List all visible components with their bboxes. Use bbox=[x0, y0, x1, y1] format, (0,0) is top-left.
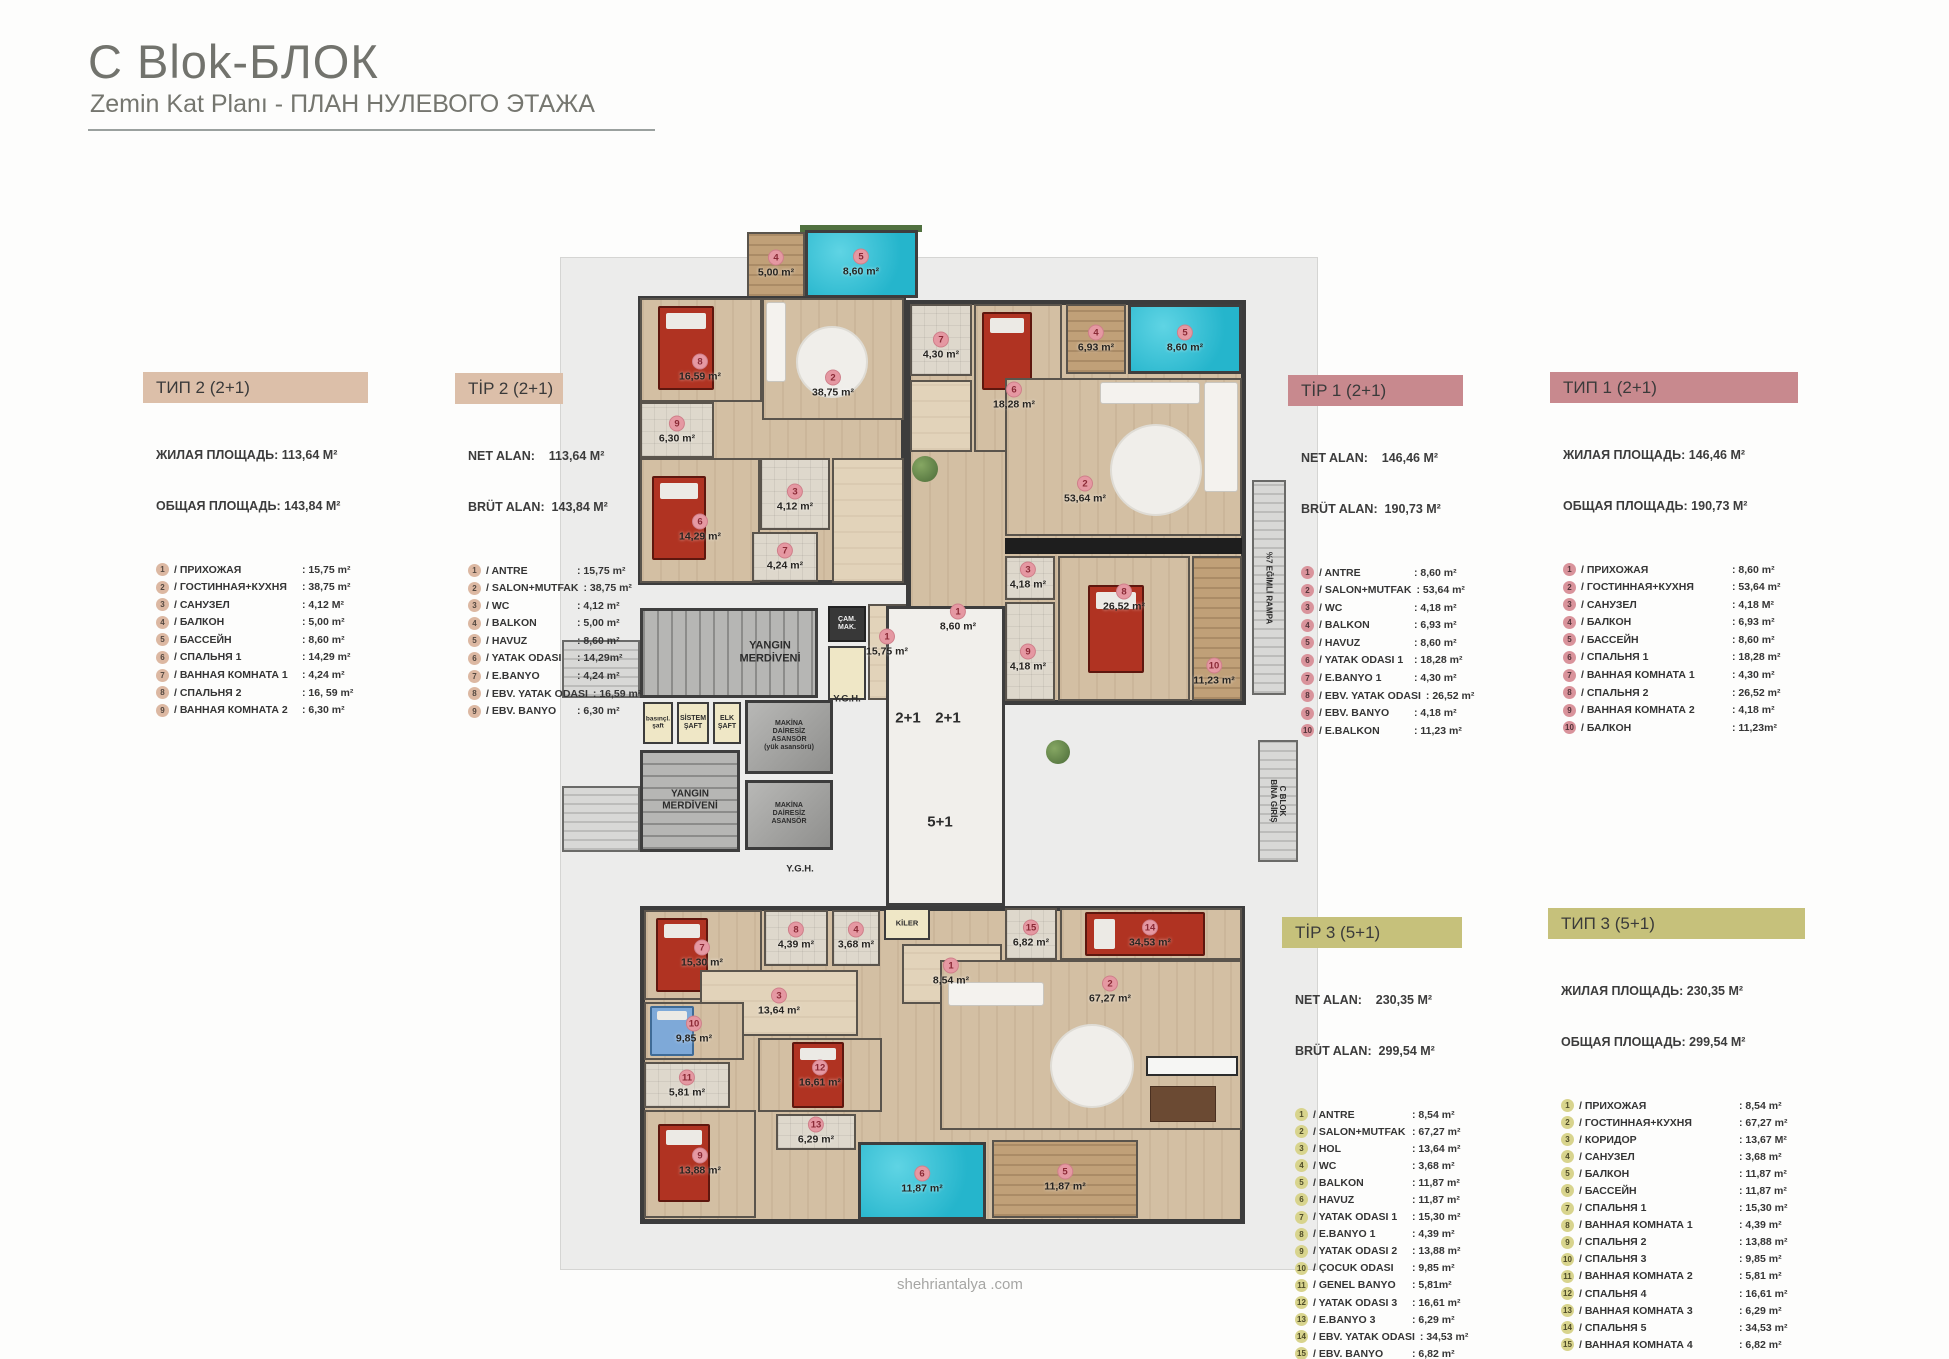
room-number-badge: 2 bbox=[1561, 1116, 1574, 1129]
legend-tr-tip1: TİP 1 (2+1) NET ALAN: 146,46 M² BRÜT ALA… bbox=[1288, 375, 1480, 742]
legend-row: 2/ SALON+MUTFAK: 38,75 m² bbox=[468, 582, 643, 595]
room-name: / ВАННАЯ КОМНАТА 1 bbox=[1579, 1219, 1734, 1231]
legend-row: 6/ HAVUZ: 11,87 m² bbox=[1295, 1193, 1478, 1206]
room-name: / ВАННАЯ КОМНАТА 4 bbox=[1579, 1339, 1734, 1351]
plan-room-label: 1011,23 m² bbox=[1193, 658, 1234, 687]
room-name: / EBV. YATAK ODASI bbox=[1319, 690, 1421, 702]
room-name: / СПАЛЬНЯ 2 bbox=[174, 687, 297, 699]
room-name: / ВАННАЯ КОМНАТА 1 bbox=[1581, 669, 1727, 681]
room-number-badge: 2 bbox=[1102, 976, 1118, 992]
kitchen-counter bbox=[1005, 538, 1242, 554]
room-name: / HOL bbox=[1313, 1143, 1407, 1155]
room-name: / СПАЛЬНЯ 2 bbox=[1579, 1236, 1734, 1248]
plan-room-label: 313,64 m² bbox=[758, 988, 800, 1017]
room-area-value: : 5,81m² bbox=[1412, 1279, 1478, 1291]
room-number-badge: 14 bbox=[1142, 920, 1158, 936]
room-number-badge: 3 bbox=[1020, 562, 1036, 578]
room-number-badge: 11 bbox=[1561, 1270, 1574, 1283]
legend-row: 2/ SALON+MUTFAK: 67,27 m² bbox=[1295, 1125, 1478, 1138]
room-name: / ПРИХОЖАЯ bbox=[174, 564, 297, 576]
room-name: / WC bbox=[1313, 1160, 1407, 1172]
room-area-value: : 4,30 m² bbox=[1414, 672, 1480, 684]
legend-title: ТИП 1 (2+1) bbox=[1550, 372, 1798, 403]
room-area-value: : 11,87 m² bbox=[1412, 1177, 1478, 1189]
room-number-badge: 12 bbox=[812, 1060, 828, 1076]
legend-row: 7/ ВАННАЯ КОМНАТА 1: 4,30 m² bbox=[1563, 669, 1798, 682]
room-number-badge: 8 bbox=[1561, 1219, 1574, 1232]
room-area-value: : 6,93 m² bbox=[1732, 616, 1798, 628]
room-name: / СПАЛЬНЯ 5 bbox=[1579, 1322, 1734, 1334]
brochure-page: C Blok-БЛОК Zemin Kat Planı - ПЛАН НУЛЕВ… bbox=[0, 0, 1949, 1359]
legend-row: 9/ ВАННАЯ КОМНАТА 2: 6,30 m² bbox=[156, 704, 368, 717]
legend-row: 1/ ПРИХОЖАЯ: 8,60 m² bbox=[1563, 563, 1798, 576]
plan-annotation: %7 EĞİMLİ RAMPA bbox=[1264, 552, 1273, 624]
legend-row: 1/ ANTRE: 8,54 m² bbox=[1295, 1108, 1478, 1121]
room-area-value: 3,68 m² bbox=[838, 939, 874, 951]
room-area-value: : 6,29 m² bbox=[1412, 1314, 1478, 1326]
plan-room-label: 913,88 m² bbox=[679, 1148, 721, 1177]
plan-room-label: 58,60 m² bbox=[843, 249, 879, 278]
room-number-badge: 1 bbox=[156, 563, 169, 576]
legend-row: 1/ ПРИХОЖАЯ: 15,75 m² bbox=[156, 563, 368, 576]
room-number-badge: 9 bbox=[1295, 1245, 1308, 1258]
room-number-badge: 10 bbox=[1206, 658, 1222, 674]
room-name: / YATAK ODASI 1 bbox=[1319, 654, 1409, 666]
room-area-value: 8,60 m² bbox=[1167, 342, 1203, 354]
room-number-badge: 10 bbox=[686, 1016, 702, 1032]
legend-area-line: ОБЩАЯ ПЛОЩАДЬ: 190,73 М² bbox=[1563, 498, 1798, 515]
room-number-badge: 6 bbox=[692, 514, 708, 530]
room-number-badge: 2 bbox=[1295, 1125, 1308, 1138]
exterior-stairs-2 bbox=[562, 786, 640, 852]
legend-row: 1/ ANTRE: 8,60 m² bbox=[1301, 566, 1480, 579]
legend-tr-tip3: TİP 3 (5+1) NET ALAN: 230,35 M² BRÜT ALA… bbox=[1282, 917, 1478, 1359]
legend-row: 8/ EBV. YATAK ODASI: 16,59 m² bbox=[468, 687, 643, 700]
room-area-value: 13,64 m² bbox=[758, 1005, 800, 1017]
room-number-badge: 4 bbox=[768, 250, 784, 266]
room-number-badge: 8 bbox=[692, 354, 708, 370]
room-area-value: : 16,61 m² bbox=[1739, 1288, 1805, 1300]
plan-room-label: 18,54 m² bbox=[933, 958, 969, 987]
legend-row: 5/ HAVUZ: 8,60 m² bbox=[468, 634, 643, 647]
legend-row: 4/ САНУЗЕЛ: 3,68 m² bbox=[1561, 1150, 1805, 1163]
room-name: / БАЛКОН bbox=[1581, 616, 1727, 628]
legend-row: 5/ БАССЕЙН: 8,60 m² bbox=[1563, 633, 1798, 646]
room-area-value: : 15,30 m² bbox=[1739, 1202, 1805, 1214]
plan-room-label: 156,82 m² bbox=[1013, 920, 1049, 949]
hall-tip1 bbox=[910, 380, 972, 452]
plan-annotation: ELK ŞAFT bbox=[718, 715, 736, 731]
room-area-value: : 13,64 m² bbox=[1412, 1143, 1478, 1155]
room-number-badge: 3 bbox=[787, 484, 803, 500]
room-area-value: 13,88 m² bbox=[679, 1165, 721, 1177]
legend-row: 5/ БАЛКОН: 11,87 m² bbox=[1561, 1167, 1805, 1180]
legend-rows: 1/ ANTRE: 8,60 m²2/ SALON+MUTFAK: 53,64 … bbox=[1288, 566, 1480, 742]
plan-room-label: 34,18 m² bbox=[1010, 562, 1046, 591]
legend-row: 5/ HAVUZ: 8,60 m² bbox=[1301, 636, 1480, 649]
room-number-badge: 7 bbox=[1295, 1211, 1308, 1224]
room-area-value: : 9,85 m² bbox=[1412, 1262, 1478, 1274]
room-area-value: : 8,54 m² bbox=[1739, 1100, 1805, 1112]
room-number-badge: 15 bbox=[1561, 1338, 1574, 1351]
page-subtitle: Zemin Kat Planı - ПЛАН НУЛЕВОГО ЭТАЖА bbox=[90, 90, 595, 119]
room-name: / SALON+MUTFAK bbox=[486, 582, 578, 594]
room-number-badge: 14 bbox=[1561, 1321, 1574, 1334]
room-name: / САНУЗЕЛ bbox=[1581, 599, 1727, 611]
legend-row: 10/ СПАЛЬНЯ 3: 9,85 m² bbox=[1561, 1253, 1805, 1266]
room-number-badge: 8 bbox=[468, 687, 481, 700]
room-area-value: 34,53 m² bbox=[1129, 937, 1171, 949]
room-number-badge: 3 bbox=[771, 988, 787, 1004]
plan-room-label: 115,81 m² bbox=[669, 1070, 705, 1099]
room-number-badge: 8 bbox=[1295, 1228, 1308, 1241]
rug bbox=[1050, 1024, 1134, 1108]
room-number-badge: 3 bbox=[1301, 601, 1314, 614]
plan-room-label: 94,18 m² bbox=[1010, 644, 1046, 673]
room-name: / WC bbox=[486, 600, 572, 612]
room-number-badge: 5 bbox=[1295, 1176, 1308, 1189]
room-number-badge: 13 bbox=[808, 1117, 824, 1133]
room-name: / BALKON bbox=[1313, 1177, 1407, 1189]
dining-table bbox=[1150, 1086, 1216, 1122]
legend-row: 2/ ГОСТИННАЯ+КУХНЯ: 53,64 m² bbox=[1563, 581, 1798, 594]
room-name: / HAVUZ bbox=[1313, 1194, 1407, 1206]
plan-room-label: 1434,53 m² bbox=[1129, 920, 1171, 949]
room-name: / ВАННАЯ КОМНАТА 1 bbox=[174, 669, 297, 681]
room-area-value: : 15,30 m² bbox=[1412, 1211, 1478, 1223]
legend-title: ТИП 2 (2+1) bbox=[143, 372, 368, 403]
room-name: / YATAK ODASI 1 bbox=[1313, 1211, 1407, 1223]
room-area-value: 16,61 m² bbox=[799, 1077, 841, 1089]
legend-area-line: NET ALAN: 230,35 M² bbox=[1295, 992, 1478, 1009]
room-number-badge: 15 bbox=[1295, 1347, 1308, 1359]
room-name: / YATAK ODASI bbox=[486, 652, 572, 664]
room-number-badge: 7 bbox=[1563, 669, 1576, 682]
room-area-value: 8,54 m² bbox=[933, 975, 969, 987]
sofa bbox=[766, 302, 786, 382]
legend-ru-tip1: ТИП 1 (2+1) ЖИЛАЯ ПЛОЩАДЬ: 146,46 М² ОБЩ… bbox=[1550, 372, 1798, 739]
room-number-badge: 7 bbox=[1301, 672, 1314, 685]
room-area-value: 18,28 m² bbox=[993, 399, 1035, 411]
room-number-badge: 5 bbox=[1563, 633, 1576, 646]
room-number-badge: 3 bbox=[1561, 1133, 1574, 1146]
legend-row: 1/ ANTRE: 15,75 m² bbox=[468, 564, 643, 577]
room-number-badge: 11 bbox=[1295, 1279, 1308, 1292]
legend-row: 5/ BALKON: 11,87 m² bbox=[1295, 1176, 1478, 1189]
room-area-value: 67,27 m² bbox=[1089, 993, 1131, 1005]
plan-annotation: ÇAM. MAK. bbox=[838, 616, 856, 632]
room-name: / ANTRE bbox=[1313, 1109, 1407, 1121]
legend-row: 9/ YATAK ODASI 2: 13,88 m² bbox=[1295, 1245, 1478, 1258]
room-number-badge: 3 bbox=[1563, 598, 1576, 611]
plan-room-label: 618,28 m² bbox=[993, 382, 1035, 411]
room-number-badge: 3 bbox=[468, 599, 481, 612]
room-area-value: 4,18 m² bbox=[1010, 661, 1046, 673]
legend-row: 6/ СПАЛЬНЯ 1: 14,29 m² bbox=[156, 651, 368, 664]
plan-room-label: 18,60 m² bbox=[940, 604, 976, 633]
legend-row: 3/ WC: 4,12 m² bbox=[468, 599, 643, 612]
room-area-value: : 11,87 m² bbox=[1739, 1168, 1805, 1180]
room-number-badge: 5 bbox=[156, 633, 169, 646]
room-area-value: 11,87 m² bbox=[901, 1183, 942, 1195]
plan-room-label: 96,30 m² bbox=[659, 416, 695, 445]
legend-row: 5/ БАССЕЙН: 8,60 m² bbox=[156, 633, 368, 646]
room-number-badge: 6 bbox=[1006, 382, 1022, 398]
room-name: / СПАЛЬНЯ 4 bbox=[1579, 1288, 1734, 1300]
plan-annotation: SİSTEM ŞAFT bbox=[680, 715, 706, 731]
rug bbox=[1110, 424, 1202, 516]
legend-row: 3/ КОРИДОР: 13,67 М² bbox=[1561, 1133, 1805, 1146]
room-name: / КОРИДОР bbox=[1579, 1134, 1734, 1146]
sofa bbox=[1204, 382, 1238, 492]
room-area-value: : 11,23 m² bbox=[1414, 725, 1480, 737]
legend-row: 3/ WC: 4,18 m² bbox=[1301, 601, 1480, 614]
room-area-value: : 4,18 m² bbox=[1732, 704, 1798, 716]
room-name: / SALON+MUTFAK bbox=[1313, 1126, 1407, 1138]
room-area-value: 26,52 m² bbox=[1103, 601, 1145, 613]
legend-row: 8/ СПАЛЬНЯ 2: 16, 59 m² bbox=[156, 686, 368, 699]
plan-annotation: Y.G.H. bbox=[786, 865, 813, 876]
legend-row: 10/ ÇOCUK ODASI: 9,85 m² bbox=[1295, 1262, 1478, 1275]
room-area-value: : 8,54 m² bbox=[1412, 1109, 1478, 1121]
room-area-value: : 67,27 m² bbox=[1739, 1117, 1805, 1129]
legend-row: 6/ YATAK ODASI 1: 18,28 m² bbox=[1301, 654, 1480, 667]
hall-tip2 bbox=[832, 458, 904, 583]
room-name: / ГОСТИННАЯ+КУХНЯ bbox=[174, 581, 297, 593]
room-area-value: 9,85 m² bbox=[676, 1033, 712, 1045]
legend-rows: 1/ ПРИХОЖАЯ: 8,60 m²2/ ГОСТИННАЯ+КУХНЯ: … bbox=[1550, 563, 1798, 739]
room-area-value: : 11,87 m² bbox=[1412, 1194, 1478, 1206]
room-name: / БАССЕЙН bbox=[174, 634, 297, 646]
room-area-value: : 14,29m² bbox=[577, 652, 643, 664]
room-area-value: : 5,81 m² bbox=[1739, 1270, 1805, 1282]
legend-ru-tip2: ТИП 2 (2+1) ЖИЛАЯ ПЛОЩАДЬ: 113,64 М² ОБЩ… bbox=[143, 372, 368, 721]
legend-row: 13/ E.BANYO 3: 6,29 m² bbox=[1295, 1313, 1478, 1326]
room-name: / E.BANYO 1 bbox=[1319, 672, 1409, 684]
room-name: / EBV. BANYO bbox=[1319, 707, 1409, 719]
plan-annotation: MAKİNA DAİRESİZ ASANSÖR bbox=[771, 802, 806, 826]
room-area-value: : 14,29 m² bbox=[302, 651, 368, 663]
room-name: / E.BALKON bbox=[1319, 725, 1409, 737]
plan-room-label: 45,00 m² bbox=[758, 250, 794, 279]
room-number-badge: 3 bbox=[156, 598, 169, 611]
plan-room-label: 1216,61 m² bbox=[799, 1060, 841, 1089]
plan-room-label: 115,75 m² bbox=[866, 629, 908, 658]
legend-row: 6/ БАССЕЙН: 11,87 m² bbox=[1561, 1184, 1805, 1197]
room-number-badge: 5 bbox=[1301, 636, 1314, 649]
room-number-badge: 12 bbox=[1561, 1287, 1574, 1300]
legend-area-line: ЖИЛАЯ ПЛОЩАДЬ: 113,64 М² bbox=[156, 447, 368, 464]
legend-row: 10/ E.BALKON: 11,23 m² bbox=[1301, 724, 1480, 737]
room-area-value: : 11,23m² bbox=[1732, 722, 1798, 734]
room-area-value: : 13,88 m² bbox=[1412, 1245, 1478, 1257]
plan-annotation: Y.G.H. bbox=[833, 695, 860, 706]
room-number-badge: 13 bbox=[1295, 1313, 1308, 1326]
plan-room-label: 136,29 m² bbox=[798, 1117, 834, 1146]
room-name: / ГОСТИННАЯ+КУХНЯ bbox=[1579, 1117, 1734, 1129]
room-number-badge: 2 bbox=[1077, 476, 1093, 492]
legend-row: 6/ СПАЛЬНЯ 1: 18,28 m² bbox=[1563, 651, 1798, 664]
legend-row: 2/ SALON+MUTFAK: 53,64 m² bbox=[1301, 584, 1480, 597]
plan-room-label: 816,59 m² bbox=[679, 354, 721, 383]
legend-row: 6/ YATAK ODASI: 14,29m² bbox=[468, 652, 643, 665]
room-area-value: : 8,60 m² bbox=[1732, 634, 1798, 646]
room-name: / БАЛКОН bbox=[1581, 722, 1727, 734]
room-number-badge: 7 bbox=[468, 670, 481, 683]
room-name: / БАЛКОН bbox=[174, 616, 297, 628]
room-area-value: 6,30 m² bbox=[659, 433, 695, 445]
room-number-badge: 6 bbox=[468, 652, 481, 665]
legend-row: 11/ GENEL BANYO: 5,81m² bbox=[1295, 1279, 1478, 1292]
room-area-value: : 6,30 m² bbox=[577, 705, 643, 717]
legend-area-line: NET ALAN: 113,64 M² bbox=[468, 448, 643, 465]
room-area-value: : 18,28 m² bbox=[1414, 654, 1480, 666]
room-name: / E.BANYO 1 bbox=[1313, 1228, 1407, 1240]
plan-annotation: YANGIN MERDİVENİ bbox=[739, 639, 800, 664]
room-number-badge: 1 bbox=[1295, 1108, 1308, 1121]
plan-room-label: 715,30 m² bbox=[681, 940, 723, 969]
plant bbox=[912, 456, 938, 482]
room-number-badge: 4 bbox=[848, 922, 864, 938]
legend-row: 8/ ВАННАЯ КОМНАТА 1: 4,39 m² bbox=[1561, 1219, 1805, 1232]
plan-room-label: 46,93 m² bbox=[1078, 325, 1114, 354]
legend-area-line: NET ALAN: 146,46 M² bbox=[1301, 450, 1480, 467]
room-name: / EBV. YATAK ODASI bbox=[1313, 1331, 1415, 1343]
plan-annotation: 2+1 bbox=[935, 709, 960, 726]
room-area-value: 4,30 m² bbox=[923, 349, 959, 361]
legend-row: 13/ ВАННАЯ КОМНАТА 3: 6,29 m² bbox=[1561, 1304, 1805, 1317]
room-name: / ANTRE bbox=[486, 565, 572, 577]
room-number-badge: 7 bbox=[777, 543, 793, 559]
room-number-badge: 7 bbox=[933, 332, 949, 348]
room-name: / БАССЕЙН bbox=[1581, 634, 1727, 646]
room-name: / EBV. YATAK ODASI bbox=[486, 688, 588, 700]
legend-title: ТИП 3 (5+1) bbox=[1548, 908, 1805, 939]
plan-room-label: 614,29 m² bbox=[679, 514, 721, 543]
room-number-badge: 7 bbox=[1561, 1202, 1574, 1215]
room-area-value: : 53,64 m² bbox=[1416, 584, 1482, 596]
room-name: / ПРИХОЖАЯ bbox=[1579, 1100, 1734, 1112]
room-number-badge: 7 bbox=[694, 940, 710, 956]
legend-area-line: ЖИЛАЯ ПЛОЩАДЬ: 230,35 М² bbox=[1561, 983, 1805, 1000]
room-name: / БАЛКОН bbox=[1579, 1168, 1734, 1180]
room-name: / EBV. BANYO bbox=[1313, 1348, 1407, 1359]
legend-row: 4/ БАЛКОН: 5,00 m² bbox=[156, 616, 368, 629]
room-name: / САНУЗЕЛ bbox=[174, 599, 297, 611]
room-number-badge: 4 bbox=[1301, 619, 1314, 632]
room-number-badge: 6 bbox=[914, 1166, 930, 1182]
legend-row: 8/ СПАЛЬНЯ 2: 26,52 m² bbox=[1563, 686, 1798, 699]
plan-room-label: 611,87 m² bbox=[901, 1166, 942, 1195]
plan-room-label: 511,87 m² bbox=[1044, 1164, 1085, 1193]
room-area-value: : 8,60 m² bbox=[1414, 637, 1480, 649]
room-name: / ВАННАЯ КОМНАТА 3 bbox=[1579, 1305, 1734, 1317]
room-number-badge: 1 bbox=[1563, 563, 1576, 576]
plan-annotation: C BLOK BİNA GİRİŞ bbox=[1269, 779, 1287, 822]
sofa bbox=[1100, 382, 1200, 404]
room-name: / EBV. BANYO bbox=[486, 705, 572, 717]
room-area-value: 16,59 m² bbox=[679, 371, 721, 383]
room-number-badge: 4 bbox=[1563, 616, 1576, 629]
legend-row: 8/ E.BANYO 1: 4,39 m² bbox=[1295, 1228, 1478, 1241]
room-area-value: : 8,60 m² bbox=[302, 634, 368, 646]
room-number-badge: 9 bbox=[468, 705, 481, 718]
room-number-badge: 9 bbox=[1561, 1236, 1574, 1249]
room-area-value: 4,24 m² bbox=[767, 560, 803, 572]
room-name: / E.BANYO bbox=[486, 670, 572, 682]
legend-row: 14/ EBV. YATAK ODASI: 34,53 m² bbox=[1295, 1330, 1478, 1343]
room-area-value: : 9,85 m² bbox=[1739, 1253, 1805, 1265]
room-area-value: 4,18 m² bbox=[1010, 579, 1046, 591]
plan-room-label: 253,64 m² bbox=[1064, 476, 1106, 505]
legend-row: 7/ YATAK ODASI 1: 15,30 m² bbox=[1295, 1211, 1478, 1224]
room-number-badge: 10 bbox=[1563, 721, 1576, 734]
room-number-badge: 1 bbox=[950, 604, 966, 620]
room-number-badge: 1 bbox=[1561, 1099, 1574, 1112]
room-area-value: 11,23 m² bbox=[1193, 675, 1234, 687]
room-number-badge: 2 bbox=[825, 370, 841, 386]
room-number-badge: 4 bbox=[1295, 1159, 1308, 1172]
legend-row: 10/ БАЛКОН: 11,23m² bbox=[1563, 721, 1798, 734]
legend-row: 9/ EBV. BANYO: 6,30 m² bbox=[468, 705, 643, 718]
legend-row: 7/ E.BANYO: 4,24 m² bbox=[468, 670, 643, 683]
room-number-badge: 9 bbox=[692, 1148, 708, 1164]
room-number-badge: 6 bbox=[1563, 651, 1576, 664]
legend-row: 4/ БАЛКОН: 6,93 m² bbox=[1563, 616, 1798, 629]
room-number-badge: 10 bbox=[1561, 1253, 1574, 1266]
plan-room-label: 267,27 m² bbox=[1089, 976, 1131, 1005]
room-area-value: : 67,27 m² bbox=[1412, 1126, 1478, 1138]
room-area-value: : 6,93 m² bbox=[1414, 619, 1480, 631]
room-area-value: : 16, 59 m² bbox=[302, 687, 368, 699]
legend-row: 9/ EBV. BANYO: 4,18 m² bbox=[1301, 707, 1480, 720]
room-number-badge: 11 bbox=[679, 1070, 695, 1086]
legend-area-line: BRÜT ALAN: 143,84 M² bbox=[468, 499, 643, 516]
room-area-value: 15,30 m² bbox=[681, 957, 723, 969]
legend-row: 7/ СПАЛЬНЯ 1: 15,30 m² bbox=[1561, 1202, 1805, 1215]
room-area-value: : 4,39 m² bbox=[1739, 1219, 1805, 1231]
room-area-value: : 4,24 m² bbox=[577, 670, 643, 682]
room-area-value: : 6,82 m² bbox=[1739, 1339, 1805, 1351]
room-name: / HAVUZ bbox=[486, 635, 572, 647]
room-number-badge: 12 bbox=[1295, 1296, 1308, 1309]
room-number-badge: 8 bbox=[1563, 686, 1576, 699]
room-name: / BALKON bbox=[486, 617, 572, 629]
room-area-value: : 5,00 m² bbox=[302, 616, 368, 628]
legend-title: TİP 2 (2+1) bbox=[455, 373, 563, 404]
room-number-badge: 6 bbox=[1295, 1193, 1308, 1206]
room-area-value: : 4,12 m² bbox=[577, 600, 643, 612]
plan-room-label: 43,68 m² bbox=[838, 922, 874, 951]
room-area-value: : 18,28 m² bbox=[1732, 651, 1798, 663]
room-name: / БАССЕЙН bbox=[1579, 1185, 1734, 1197]
website-footer: shehriantalya .com bbox=[897, 1276, 1023, 1293]
legend-row: 9/ ВАННАЯ КОМНАТА 2: 4,18 m² bbox=[1563, 704, 1798, 717]
plan-room-label: 238,75 m² bbox=[812, 370, 854, 399]
legend-rows: 1/ ПРИХОЖАЯ: 15,75 m²2/ ГОСТИННАЯ+КУХНЯ:… bbox=[143, 563, 368, 721]
room-name: / ВАННАЯ КОМНАТА 2 bbox=[174, 704, 297, 716]
room-name: / ПРИХОЖАЯ bbox=[1581, 564, 1727, 576]
room-name: / SALON+MUTFAK bbox=[1319, 584, 1411, 596]
plan-room-label: 109,85 m² bbox=[676, 1016, 712, 1045]
legend-row: 4/ WC: 3,68 m² bbox=[1295, 1159, 1478, 1172]
page-title: C Blok-БЛОК bbox=[88, 34, 379, 89]
legend-area-line: ОБЩАЯ ПЛОЩАДЬ: 143,84 М² bbox=[156, 498, 368, 515]
room-number-badge: 5 bbox=[853, 249, 869, 265]
room-number-badge: 2 bbox=[156, 581, 169, 594]
legend-row: 7/ ВАННАЯ КОМНАТА 1: 4,24 m² bbox=[156, 669, 368, 682]
room-number-badge: 13 bbox=[1561, 1304, 1574, 1317]
